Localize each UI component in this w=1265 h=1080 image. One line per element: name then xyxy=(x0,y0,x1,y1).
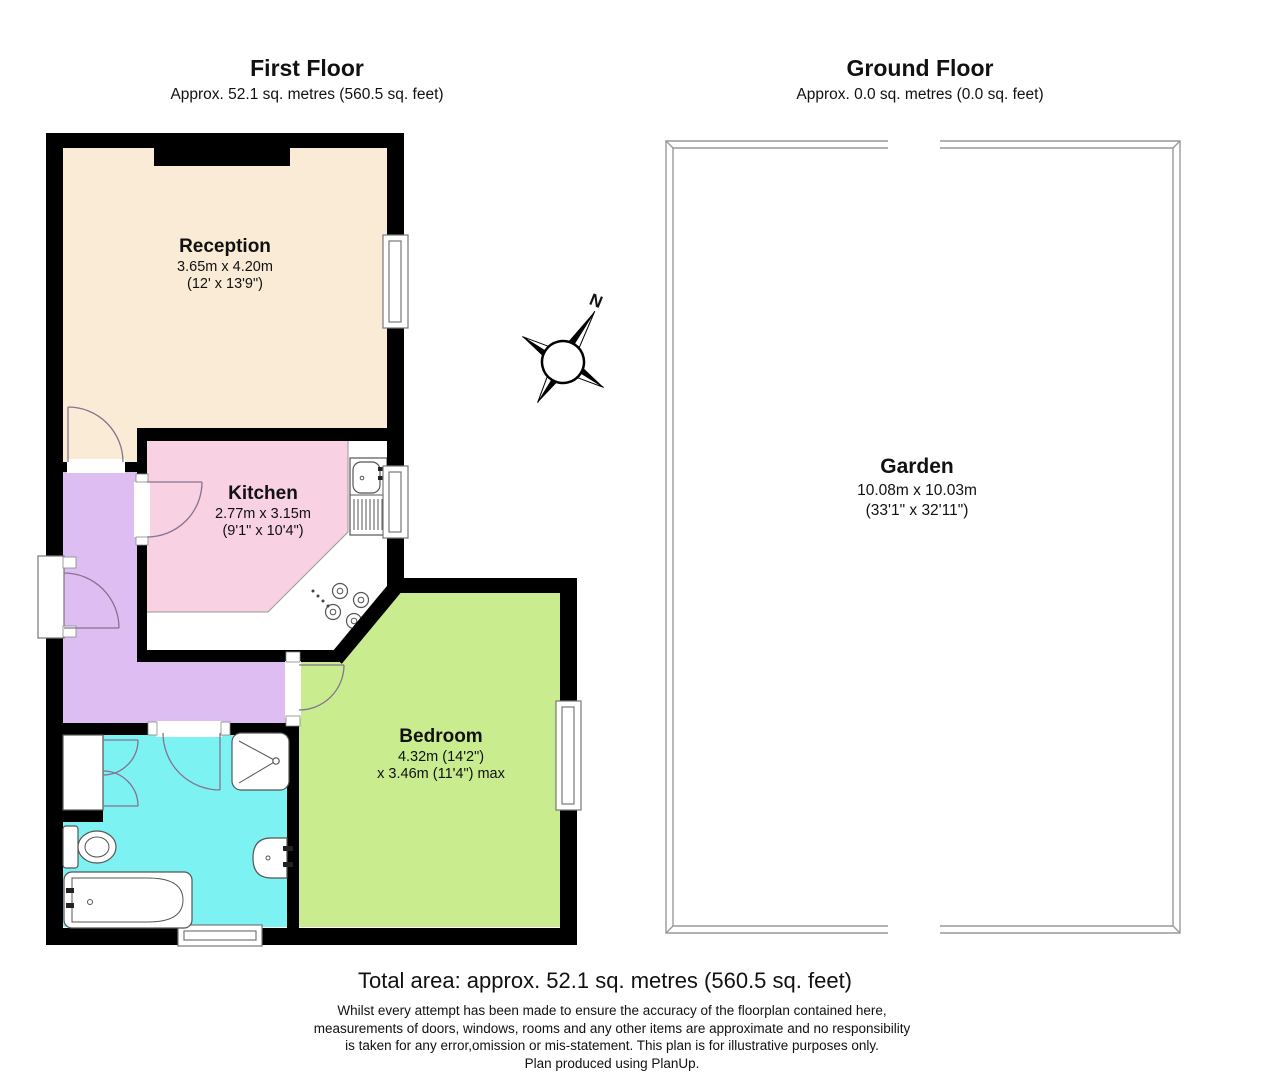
footer: Total area: approx. 52.1 sq. metres (560… xyxy=(314,968,911,1071)
disclaimer-line: Whilst every attempt has been made to en… xyxy=(337,1003,886,1018)
disclaimer-line: measurements of doors, windows, rooms an… xyxy=(314,1021,911,1036)
first-floor-plan: Reception 3.65m x 4.20m (12' x 13'9") Ki… xyxy=(38,133,581,946)
garden-plan: Garden 10.08m x 10.03m (33'1" x 32'11") xyxy=(666,141,1180,933)
chimney-breast xyxy=(154,148,290,166)
compass-hub xyxy=(534,333,592,391)
hob-burner xyxy=(333,584,348,599)
reception-size-imperial: (12' x 13'9") xyxy=(187,276,263,292)
compass-north-label: N xyxy=(587,290,606,312)
opening-bedroom xyxy=(285,661,301,718)
opening-bathroom xyxy=(156,721,222,737)
bedroom-window xyxy=(556,701,581,810)
first-floor-area: Approx. 52.1 sq. metres (560.5 sq. feet) xyxy=(170,86,443,103)
wall-top xyxy=(46,133,404,148)
wall-reception-kitchen xyxy=(137,428,388,441)
disclaimer-line: is taken for any error,omission or mis-s… xyxy=(345,1038,879,1053)
bathroom-window xyxy=(178,925,262,946)
opening-reception-hallway xyxy=(67,459,125,473)
produced-by-line: Plan produced using PlanUp. xyxy=(525,1056,700,1071)
kitchen-window xyxy=(383,466,408,538)
kitchen-size-imperial: (9'1" x 10'4") xyxy=(222,523,303,539)
compass-rose: N xyxy=(497,286,636,428)
floorplan-page: Reception 3.65m x 4.20m (12' x 13'9") Ki… xyxy=(0,0,1265,1080)
kitchen-sink-unit xyxy=(350,458,387,535)
wall-left xyxy=(46,133,63,945)
hob-burner xyxy=(354,593,369,608)
opening-kitchen xyxy=(134,482,150,537)
floorplan-canvas: Reception 3.65m x 4.20m (12' x 13'9") Ki… xyxy=(0,0,1265,1080)
basin xyxy=(253,838,293,878)
bedroom-size-line2: x 3.46m (11'4") max xyxy=(377,766,505,782)
reception-room xyxy=(63,148,387,462)
reception-window xyxy=(383,235,408,328)
bedroom-label: Bedroom xyxy=(399,726,482,747)
garden-size-metric: 10.08m x 10.03m xyxy=(857,482,977,499)
shower xyxy=(232,733,289,790)
wall-bottom xyxy=(46,928,577,945)
wall-kitchen-bottom xyxy=(137,650,342,662)
reception-label: Reception xyxy=(179,236,271,257)
reception-size-metric: 3.65m x 4.20m xyxy=(177,259,273,275)
ground-floor-area: Approx. 0.0 sq. metres (0.0 sq. feet) xyxy=(796,86,1043,103)
floor-titles: First Floor Approx. 52.1 sq. metres (560… xyxy=(170,55,1043,103)
bathtub xyxy=(64,872,192,928)
bedroom-size-line1: 4.32m (14'2") xyxy=(398,749,484,765)
garden-label: Garden xyxy=(880,455,954,478)
garden-boundary xyxy=(666,141,1180,933)
garden-labels: Garden 10.08m x 10.03m (33'1" x 32'11") xyxy=(857,455,977,519)
garden-size-imperial: (33'1" x 32'11") xyxy=(866,502,969,519)
ground-floor-title: Ground Floor xyxy=(847,55,994,81)
first-floor-title: First Floor xyxy=(250,55,364,81)
kitchen-size-metric: 2.77m x 3.15m xyxy=(215,506,311,522)
kitchen-label: Kitchen xyxy=(228,483,298,504)
wall-bedroom-top xyxy=(387,578,577,593)
wall-closet-bottom xyxy=(63,810,103,822)
total-area: Total area: approx. 52.1 sq. metres (560… xyxy=(358,968,852,993)
